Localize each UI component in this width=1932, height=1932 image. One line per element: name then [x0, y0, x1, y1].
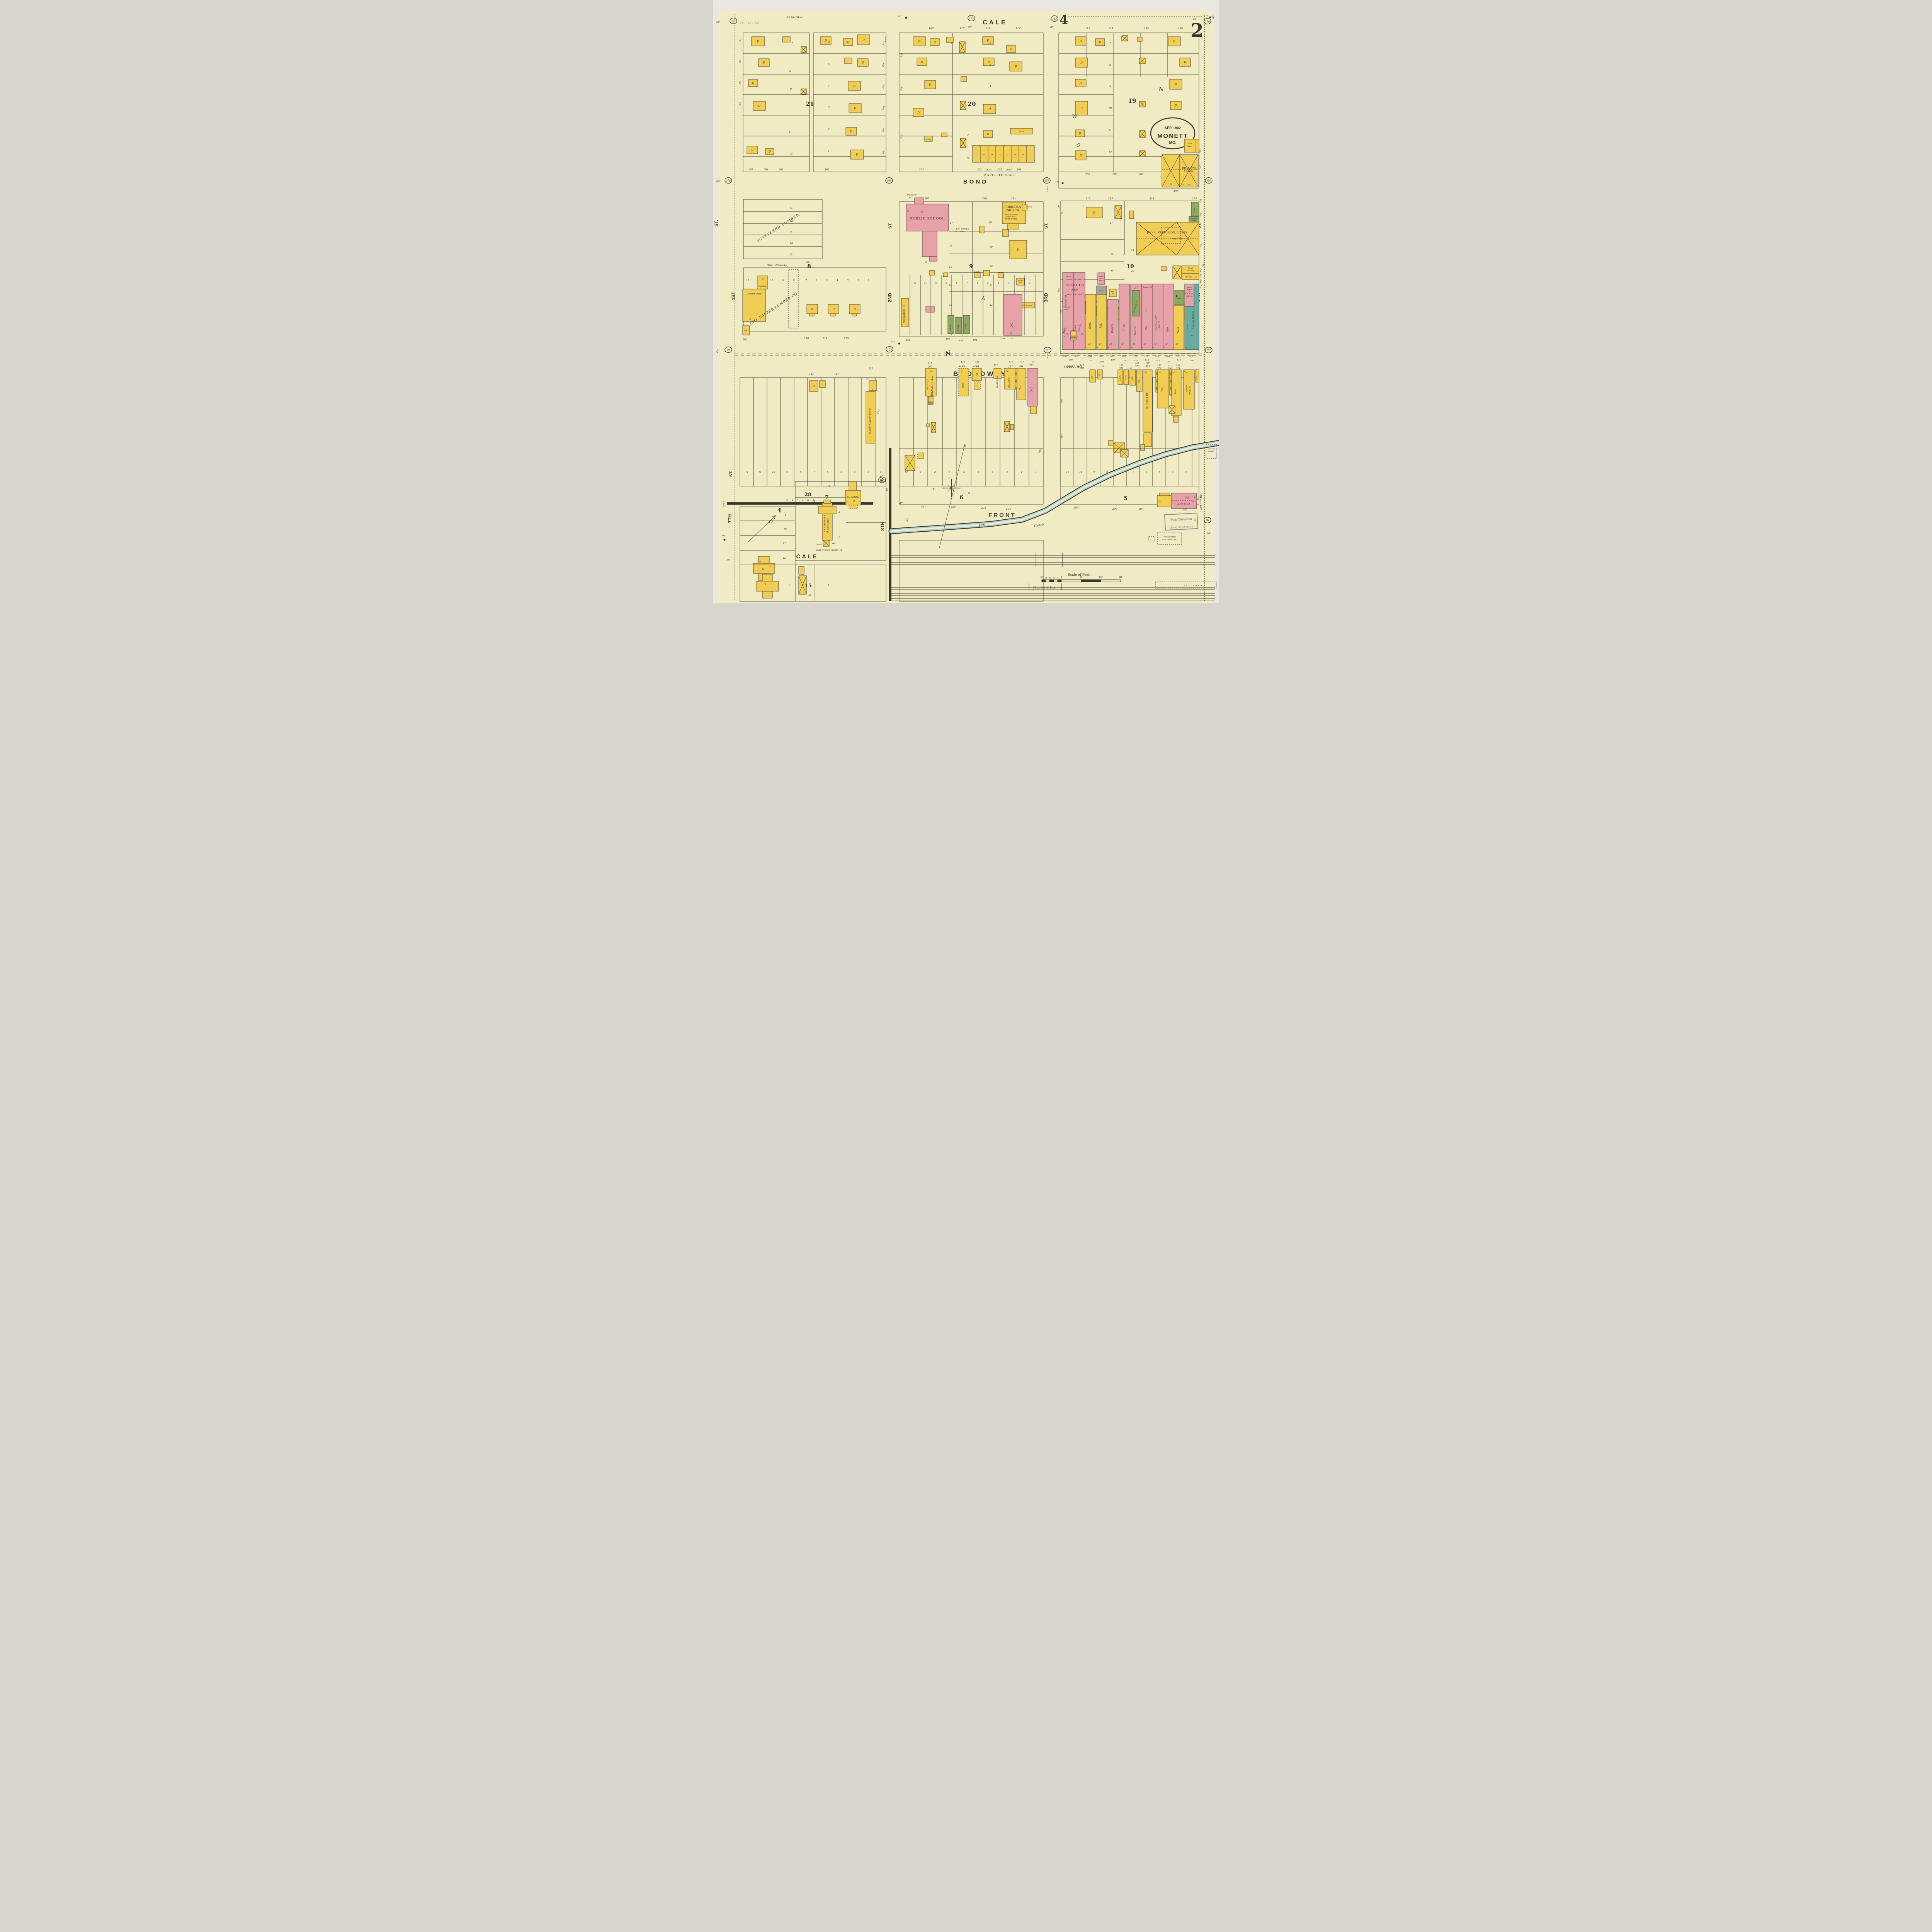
map-label: 102 — [946, 338, 950, 341]
map-label: 10 — [935, 282, 937, 284]
map-label: 32' — [1155, 343, 1157, 345]
map-label: 44' — [1065, 333, 1068, 335]
map-label: Lumber. — [759, 285, 767, 287]
map-label: D — [1022, 154, 1024, 156]
dwelling-letter: D — [975, 373, 978, 376]
dwelling-letter: D — [1079, 154, 1082, 157]
map-label: 210 — [982, 197, 987, 200]
survey-marker: 105 — [887, 348, 892, 351]
block-number-10: 10 — [1126, 264, 1134, 270]
building — [810, 314, 814, 316]
map-label: 101 — [906, 339, 910, 342]
map-label: 198 — [764, 168, 768, 171]
grocery — [1163, 284, 1174, 350]
map-label: 11 — [759, 471, 762, 474]
map-label: 60' — [1050, 26, 1054, 29]
map-label: 117 — [834, 373, 839, 376]
survey-marker: 116 — [1205, 20, 1210, 23]
street-7th: 7TH — [727, 514, 733, 523]
dwelling-letter: D — [853, 85, 855, 88]
map-label: 7 — [1133, 471, 1134, 474]
map-label: Painting — [1191, 220, 1196, 221]
map-label: 3 — [1006, 471, 1008, 474]
map-label: 122 — [1009, 361, 1013, 363]
dwelling — [844, 58, 852, 63]
map-label: 129 — [1146, 362, 1150, 364]
map-label: 60' — [832, 543, 835, 545]
building — [926, 306, 934, 312]
map-label: 60' — [726, 559, 730, 562]
map-label: 1 — [1035, 471, 1037, 474]
map-label: 4 — [828, 84, 830, 87]
map-label: 111 — [986, 27, 990, 30]
map-label: 4 — [836, 279, 838, 282]
map-label: 9 — [1109, 85, 1111, 88]
dwelling-letter: D — [918, 40, 920, 43]
hydrant-dot — [905, 17, 907, 19]
map-label: 20 — [1131, 270, 1134, 272]
map-label: Photo.2d — [1189, 386, 1191, 395]
map-label: D — [1006, 154, 1009, 156]
grocery — [1017, 368, 1026, 400]
survey-marker: 410 — [1206, 179, 1211, 182]
map-label: 203 — [981, 507, 986, 510]
map-label: STAGE & SCENERY 2º — [1066, 279, 1085, 281]
map-label: Bl.Sm. — [1194, 207, 1196, 214]
dwelling-letter: D — [1014, 65, 1017, 68]
map-label: D.H. — [722, 535, 727, 537]
map-label: 120 — [975, 361, 980, 364]
map-label: 28' — [1145, 371, 1147, 373]
map-label: 202½ — [985, 168, 992, 171]
map-label: 8 — [793, 279, 794, 282]
map-label: TOWER — [816, 543, 822, 545]
map-label: 201 — [919, 168, 924, 171]
dwelling-letter: D — [917, 111, 920, 114]
dwelling-letter: D — [920, 61, 923, 64]
map-label: 10 — [770, 279, 773, 282]
map-label: 112 — [1016, 27, 1020, 30]
building — [980, 226, 984, 233]
map-label: 2 — [1156, 138, 1158, 141]
map-label: 9 — [790, 87, 792, 90]
map-label: Drugs & Jeweler. — [1155, 315, 1157, 332]
script-letter: R — [811, 500, 816, 505]
building — [1031, 406, 1037, 414]
map-label: OVER — [1099, 276, 1104, 277]
map-label: 3 — [828, 485, 830, 488]
building — [974, 382, 980, 389]
map-label: CHURCH. — [1006, 209, 1020, 212]
map-label: 8 — [956, 282, 957, 284]
map-label: 10 — [772, 471, 775, 474]
map-label: 3 — [828, 106, 830, 109]
map-label: 212 — [1085, 197, 1090, 200]
map-label: Bank. — [1187, 323, 1189, 330]
map-label: 313 — [1135, 365, 1139, 368]
map-label: Cobbler — [1119, 374, 1121, 381]
map-label: 8"W.P. — [723, 501, 725, 507]
building — [918, 453, 923, 459]
block-number-4: 4 — [777, 507, 781, 514]
map-label: D — [1014, 154, 1016, 156]
map-label: 12 — [1109, 151, 1112, 154]
dwelling-letter: D — [854, 107, 856, 110]
script-letter: W — [1072, 114, 1078, 120]
map-label: 201 — [921, 506, 926, 509]
map-label: 1½ — [1181, 184, 1184, 186]
block-number-21: 21 — [806, 100, 814, 107]
map-label: 17 — [950, 222, 953, 224]
map-label: 12 — [1145, 309, 1146, 310]
map-label: 12' — [961, 371, 963, 372]
map-label: 118 — [928, 362, 932, 364]
map-label: Gro. — [1019, 385, 1022, 390]
building — [1137, 37, 1142, 41]
implement-store — [869, 381, 877, 391]
ice-house — [974, 273, 980, 278]
building — [820, 381, 825, 388]
block-number-8: 8 — [807, 264, 811, 270]
dwelling-letter: D — [855, 153, 858, 156]
block-number-28: 28 — [804, 492, 811, 498]
map-label: 2 — [857, 279, 859, 282]
map-label: 116 — [1190, 360, 1194, 362]
building — [1159, 493, 1169, 496]
map-label: 315 — [1145, 365, 1150, 368]
map-label: 6 — [990, 42, 991, 45]
block-number-15: 15 — [805, 583, 812, 589]
map-label: 109 — [929, 27, 934, 30]
map-label: 32' — [1029, 371, 1031, 372]
dwelling-letter: D — [1080, 107, 1083, 110]
map-label: 9 — [782, 279, 784, 282]
map-label: 32' — [1121, 343, 1124, 345]
map-label: 203 — [997, 168, 1002, 171]
map-label: 206 — [1112, 173, 1117, 176]
map-label: 8 — [934, 471, 936, 474]
map-label: 214 — [822, 337, 827, 340]
map-label: 26' — [930, 370, 933, 372]
map-label: LIVERY. — [1184, 170, 1194, 173]
building — [1109, 440, 1113, 446]
map-label: 14' — [866, 378, 869, 380]
map-label: (IR.CL) — [1099, 290, 1104, 291]
map-label: Off. — [1131, 376, 1134, 380]
map-label: 40 — [1045, 577, 1047, 579]
map-label: 5 — [987, 282, 989, 284]
map-label: 12' — [1010, 332, 1013, 335]
map-label: Printing — [1187, 270, 1194, 272]
map-label: Tailor 2d — [1158, 321, 1161, 329]
building — [1141, 444, 1145, 451]
map-label: ST. — [880, 475, 884, 481]
map-label: 15 — [949, 266, 952, 269]
map-label: 217 — [1008, 366, 1013, 368]
compass-rose — [950, 487, 952, 489]
st-lawrence-label: ST. LAWRENCE — [824, 515, 826, 532]
map-label: Gro. — [1166, 327, 1169, 332]
dwelling-letter: D — [986, 133, 989, 136]
map-label: 109 — [1111, 359, 1115, 361]
map-label: 6 — [828, 584, 830, 587]
map-label: 121 — [993, 364, 998, 367]
block-number-6: 6 — [959, 495, 963, 501]
map-label: 204 — [1006, 507, 1011, 510]
map-label: Lunch & Off. — [1176, 503, 1190, 505]
vermilion-livery-label: JNO. U. VERMILION, LIVERY. — [1146, 231, 1188, 234]
map-label: 44' — [1190, 335, 1194, 337]
map-label: 207 — [1138, 507, 1144, 510]
street-bond: BOND — [963, 179, 988, 185]
map-label: 60' — [1207, 532, 1211, 535]
map-label: Hand — [1188, 267, 1193, 270]
map-label: NO LIGHT. — [955, 231, 965, 233]
map-label: 6 — [1146, 471, 1147, 474]
dwelling-letter: D — [1079, 40, 1082, 43]
map-label: 4"W.P. — [1047, 186, 1049, 192]
map-label: Barber. — [1186, 295, 1193, 298]
map-label: 50 — [1080, 576, 1082, 578]
building — [824, 500, 831, 503]
map-label: 112 — [1145, 359, 1149, 361]
dwelling-letter: D — [853, 308, 856, 311]
street-st-left: ST. — [714, 220, 719, 226]
map-label: 2º&3º — [1071, 289, 1078, 291]
map-label: 11 — [1109, 129, 1112, 132]
map-label: 125 — [1080, 364, 1084, 366]
map-label: 108 — [1100, 361, 1104, 363]
map-label: 16 — [1111, 253, 1114, 255]
map-label: D — [762, 568, 764, 571]
dwelling-letter: D — [762, 61, 765, 65]
map-label: 220 — [1000, 338, 1005, 340]
dwelling-letter: D — [862, 39, 865, 42]
map-label: Teleg off — [1187, 289, 1192, 290]
map-label: Ho. — [1112, 293, 1114, 294]
map-label: 60' — [886, 487, 888, 491]
map-label: 7 — [949, 471, 950, 474]
map-label: 115 — [1144, 27, 1149, 30]
map-label: 60' — [716, 20, 720, 24]
map-label: Off. — [1138, 379, 1140, 383]
map-label: 11 — [783, 542, 786, 545]
map-label: 2 — [1194, 496, 1196, 498]
building — [1042, 580, 1046, 582]
map-label: 5 — [990, 63, 991, 66]
map-label: 199 — [779, 168, 783, 171]
map-label: 50 — [1041, 576, 1043, 578]
building — [852, 314, 857, 316]
map-label: Barber — [1125, 374, 1127, 380]
indiana-hotel-label: INDIANA HO. — [1146, 391, 1149, 409]
street-1st: 1ST — [731, 291, 736, 300]
dwelling-letter: D — [847, 41, 849, 44]
map-label: 4 — [989, 85, 991, 88]
map-label: 9 — [946, 282, 947, 284]
map-label: Mkg — [1018, 281, 1022, 283]
map-label: 6 — [977, 282, 978, 284]
dwelling-letter: D — [986, 39, 989, 43]
building — [983, 270, 990, 276]
map-label: 2 — [879, 471, 881, 474]
map-label: 1½ — [1195, 276, 1197, 278]
street-front: FRONT — [988, 512, 1016, 519]
map-label: 14' — [1188, 184, 1191, 186]
map-label: 316 — [1155, 355, 1159, 358]
map-label: D — [991, 154, 993, 156]
map-label: 314 — [1144, 355, 1148, 358]
map-label: 124 — [1031, 361, 1035, 363]
map-label: 320 — [1176, 355, 1180, 358]
map-label: D.H. — [1203, 15, 1209, 17]
building — [1173, 416, 1178, 422]
dwelling-letter: D — [758, 105, 760, 108]
palace-hotel-label: PALACE HOTEL. — [931, 376, 934, 396]
map-label: NOT — [1100, 278, 1103, 279]
railroad-spur — [889, 448, 891, 601]
map-label: 7 — [805, 279, 807, 282]
map-label: 28' — [1172, 371, 1175, 373]
map-label: ST. — [1044, 223, 1049, 229]
hydrant-dot — [1209, 16, 1211, 18]
map-label: 113 — [1085, 27, 1090, 30]
map-label: 17 — [1110, 222, 1113, 224]
masonic-hall-label: Masonic Hall 3d — [1192, 311, 1195, 329]
map-label: 3 — [990, 107, 991, 110]
map-label: 12 — [1066, 471, 1069, 474]
scan-margin-left — [713, 0, 717, 603]
map-label: 311½ — [1126, 367, 1132, 370]
map-label: Racket S. — [1008, 378, 1010, 388]
building — [849, 481, 857, 490]
map-label: 5 — [978, 471, 979, 474]
laclede-hotel-label: LACLEDE HO. — [1200, 493, 1203, 512]
building — [943, 273, 948, 277]
map-label: 14 — [949, 284, 952, 287]
map-label: 6 — [816, 279, 817, 282]
map-label: 1 — [868, 279, 869, 282]
map-label: ST. — [729, 471, 733, 477]
building — [929, 396, 933, 405]
dwelling-letter: D — [929, 83, 931, 87]
map-label: Hardw — [1134, 326, 1137, 335]
street-cale-south: CALE — [796, 553, 818, 560]
dwelling-letter: D — [1174, 83, 1177, 86]
map-label: Paper — [1187, 145, 1193, 148]
map-label: 6 — [1134, 287, 1136, 290]
map-label: 32' — [1133, 343, 1136, 345]
building — [1129, 211, 1134, 219]
map-label: 205 — [1085, 173, 1090, 176]
map-label: 3 — [867, 471, 869, 474]
map-label: 132 — [1176, 364, 1180, 367]
map-label: 10 — [905, 471, 908, 474]
map-label: 130 — [1157, 364, 1162, 367]
map-label: 2 — [967, 134, 969, 137]
hydrant-dot — [1061, 182, 1063, 184]
school-label: SCHOOL. — [847, 495, 859, 498]
map-label: 302 — [1074, 355, 1079, 358]
map-label: 110 — [1122, 360, 1127, 362]
map-label: 213 — [1108, 197, 1113, 200]
vacant-label: V A C A N T — [786, 500, 815, 502]
grocery — [959, 368, 969, 396]
opera-house-label: OPERA HO. — [1066, 284, 1085, 287]
map-label: 322 — [1189, 355, 1193, 358]
dry-goods-store — [1003, 294, 1022, 335]
map-label: 19 — [990, 246, 993, 248]
map-label: Wall — [1188, 143, 1192, 145]
dwelling-letter: D — [1078, 132, 1081, 135]
map-label: 28' — [1099, 343, 1102, 345]
map-label: Drugs — [1122, 323, 1125, 332]
building — [756, 581, 779, 591]
map-label: 205 — [927, 366, 932, 368]
building — [799, 566, 804, 574]
map-label: 312 — [1133, 355, 1138, 358]
map-label: 2 — [907, 210, 909, 213]
scan-margin-right — [1214, 0, 1219, 603]
building — [1071, 331, 1076, 340]
map-label: 114 — [1167, 361, 1171, 363]
map-label: 22 — [989, 304, 993, 306]
map-label: D.G. — [1030, 386, 1033, 393]
map-label: 12' — [762, 278, 764, 280]
map-label: 28' — [1109, 343, 1112, 345]
block-number-19: 19 — [1128, 97, 1136, 104]
map-label: 1 — [828, 150, 830, 153]
map-label: 9 — [920, 471, 921, 474]
dwelling-letter: D — [832, 308, 835, 311]
script-letter: N — [1158, 86, 1164, 93]
map-label: 318 — [1165, 355, 1170, 358]
dwelling-letter: D — [752, 82, 754, 85]
map-label: 104 — [973, 339, 977, 342]
building — [1049, 580, 1054, 582]
map-label: 13 — [789, 253, 793, 256]
map-label: 30 — [1049, 577, 1051, 579]
building — [1161, 267, 1167, 270]
map-label: 306 — [1099, 355, 1104, 358]
map-label: 3 — [1185, 471, 1187, 474]
map-label: FOR EXPR. OFF. — [1162, 539, 1177, 541]
map-label: 119 — [961, 361, 965, 364]
block-number: 4 — [1060, 12, 1068, 27]
map-label: 127 — [1119, 364, 1124, 367]
map-label: D.H. — [898, 15, 903, 18]
building — [922, 231, 937, 257]
date-stamp: OCT 18 1902 — [740, 21, 759, 25]
dwelling — [961, 77, 967, 82]
map-label: 12 — [1145, 311, 1146, 313]
map-label: Gro. — [1174, 388, 1177, 394]
building — [1010, 424, 1014, 430]
map-label: 28' — [1175, 343, 1179, 345]
map-label: 12 — [746, 279, 749, 282]
map-label: Off. — [1091, 375, 1094, 379]
map-label: 60' — [899, 502, 903, 505]
map-label: 100 — [1099, 576, 1102, 578]
map-label: 21 — [989, 284, 993, 287]
survey-marker: 113 — [1052, 17, 1057, 20]
arlington-hotel-label: ARLINGTON HO. — [903, 304, 906, 323]
map-label: 317 — [1157, 367, 1162, 370]
map-label: Buggy Shed. — [1169, 238, 1184, 240]
map-label: 3 — [1008, 282, 1010, 284]
building — [1081, 580, 1101, 582]
map-label: 8 — [800, 471, 801, 474]
